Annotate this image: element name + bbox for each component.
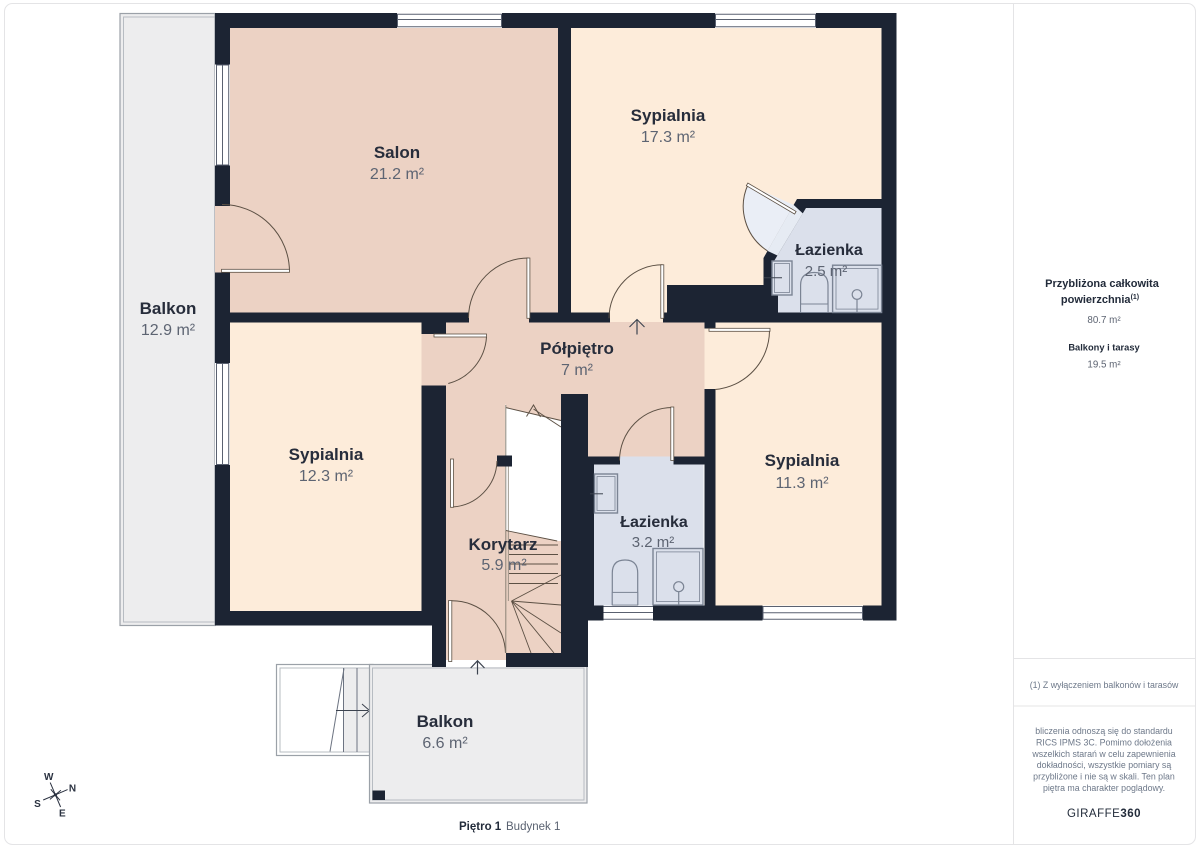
- svg-text:przybliżone i nie są w skali.: przybliżone i nie są w skali. Ten plan: [1033, 772, 1175, 782]
- svg-text:17.3 m²: 17.3 m²: [641, 129, 696, 146]
- svg-text:11.3 m²: 11.3 m²: [775, 475, 829, 492]
- svg-text:GIRAFFE360: GIRAFFE360: [1067, 808, 1141, 820]
- svg-text:bliczenia odnoszą się do stand: bliczenia odnoszą się do standardu: [1035, 726, 1173, 736]
- svg-text:powierzchnia(1): powierzchnia(1): [1061, 294, 1139, 306]
- svg-text:wszelkich starań w celu zapewn: wszelkich starań w celu zapewnienia: [1031, 749, 1175, 759]
- svg-text:Salon: Salon: [374, 143, 420, 162]
- svg-text:Łazienka: Łazienka: [620, 514, 688, 531]
- svg-text:E: E: [59, 809, 66, 820]
- svg-text:3.2 m²: 3.2 m²: [632, 534, 675, 551]
- svg-text:Balkony i tarasy: Balkony i tarasy: [1068, 343, 1140, 353]
- svg-text:12.3 m²: 12.3 m²: [299, 468, 354, 485]
- svg-text:21.2 m²: 21.2 m²: [370, 166, 425, 183]
- svg-text:Balkon: Balkon: [417, 712, 474, 731]
- svg-text:2.5 m²: 2.5 m²: [805, 263, 848, 280]
- svg-text:(1) Z wyłączeniem balkonów i t: (1) Z wyłączeniem balkonów i tarasów: [1030, 680, 1179, 690]
- svg-text:7 m²: 7 m²: [561, 362, 594, 379]
- svg-text:19.5 m²: 19.5 m²: [1087, 360, 1121, 371]
- svg-text:dokładności, wszystkie pomiary: dokładności, wszystkie pomiary są: [1037, 760, 1172, 770]
- svg-text:12.9 m²: 12.9 m²: [141, 322, 196, 339]
- svg-text:Balkon: Balkon: [140, 299, 197, 318]
- svg-text:Sypialnia: Sypialnia: [765, 451, 840, 470]
- svg-text:N: N: [69, 784, 76, 795]
- svg-text:S: S: [34, 799, 41, 810]
- svg-text:Półpiętro: Półpiętro: [540, 339, 614, 358]
- svg-text:Budynek 1: Budynek 1: [506, 821, 560, 833]
- svg-text:Piętro 1: Piętro 1: [459, 821, 502, 833]
- svg-text:Sypialnia: Sypialnia: [631, 106, 706, 125]
- svg-text:Przybliżona całkowita: Przybliżona całkowita: [1045, 278, 1160, 290]
- svg-text:piętra ma charakter poglądowy.: piętra ma charakter poglądowy.: [1043, 783, 1165, 793]
- svg-text:W: W: [44, 772, 54, 783]
- svg-text:6.6 m²: 6.6 m²: [422, 735, 468, 752]
- svg-text:Korytarz: Korytarz: [469, 535, 538, 554]
- svg-text:Sypialnia: Sypialnia: [289, 445, 364, 464]
- svg-text:Łazienka: Łazienka: [795, 242, 863, 259]
- svg-text:80.7 m²: 80.7 m²: [1087, 315, 1121, 326]
- svg-text:5.9 m²: 5.9 m²: [481, 557, 527, 574]
- svg-text:RICS IPMS 3C. Pomimo dołożenia: RICS IPMS 3C. Pomimo dołożenia: [1036, 737, 1172, 747]
